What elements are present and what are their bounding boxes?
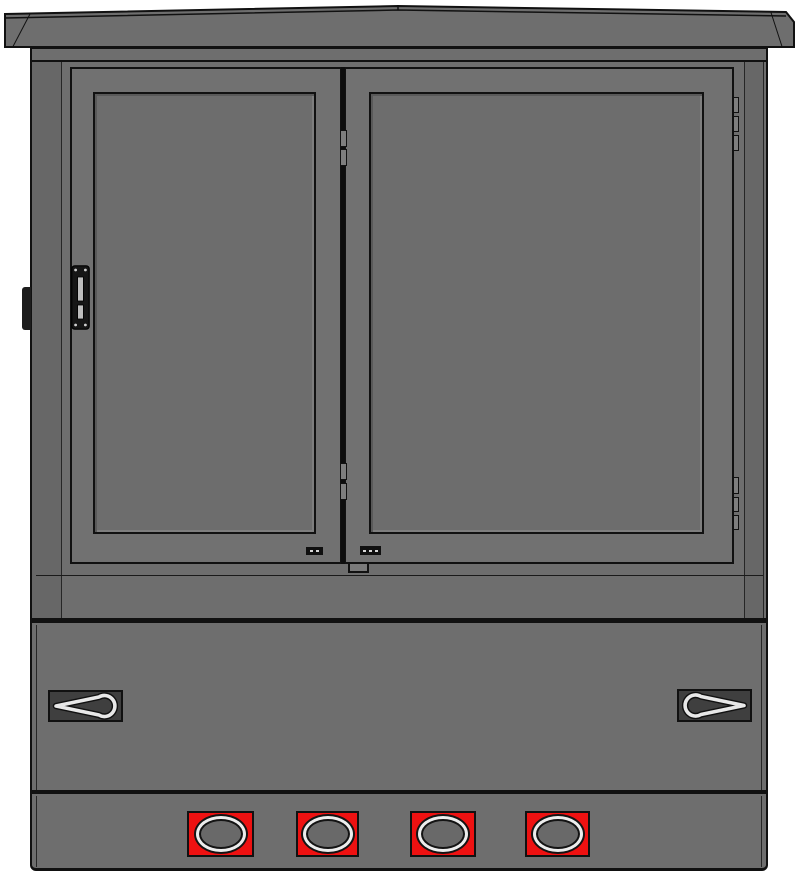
cabinet-technical-drawing bbox=[0, 0, 800, 879]
left-side-face bbox=[32, 62, 61, 618]
left-frame-line bbox=[61, 62, 62, 618]
right-frame-line-outer bbox=[763, 62, 764, 618]
door-latch-plate bbox=[71, 265, 90, 330]
left-door-panel bbox=[93, 92, 316, 534]
right-door-panel bbox=[369, 92, 704, 534]
latch-slot-upper bbox=[78, 277, 84, 301]
door-gap bbox=[341, 67, 345, 564]
door-stop-tab bbox=[348, 564, 369, 573]
right-side-face bbox=[745, 62, 763, 618]
latch-screw bbox=[84, 324, 87, 327]
roof-outline bbox=[5, 6, 794, 47]
mid-right-edge-line bbox=[761, 625, 762, 790]
latch-slot-lower bbox=[78, 305, 84, 319]
right-frame-line-inner bbox=[744, 62, 745, 618]
bottom-sill-line bbox=[36, 575, 763, 576]
latch-screw bbox=[74, 324, 77, 327]
latch-screw bbox=[84, 269, 87, 272]
latch-screw bbox=[74, 269, 77, 272]
bottom-right-edge-line bbox=[761, 796, 762, 867]
side-latch-protrusion bbox=[22, 287, 31, 330]
cabinet-mid-body bbox=[30, 623, 768, 792]
cabinet-bottom-body bbox=[30, 792, 768, 871]
wire-handle-icon bbox=[50, 692, 121, 720]
pull-handle-right bbox=[677, 689, 752, 722]
pull-handle-left bbox=[48, 690, 123, 722]
mid-left-edge-line bbox=[36, 625, 37, 790]
wire-handle-icon bbox=[679, 691, 750, 720]
bottom-left-edge-line bbox=[36, 796, 37, 867]
